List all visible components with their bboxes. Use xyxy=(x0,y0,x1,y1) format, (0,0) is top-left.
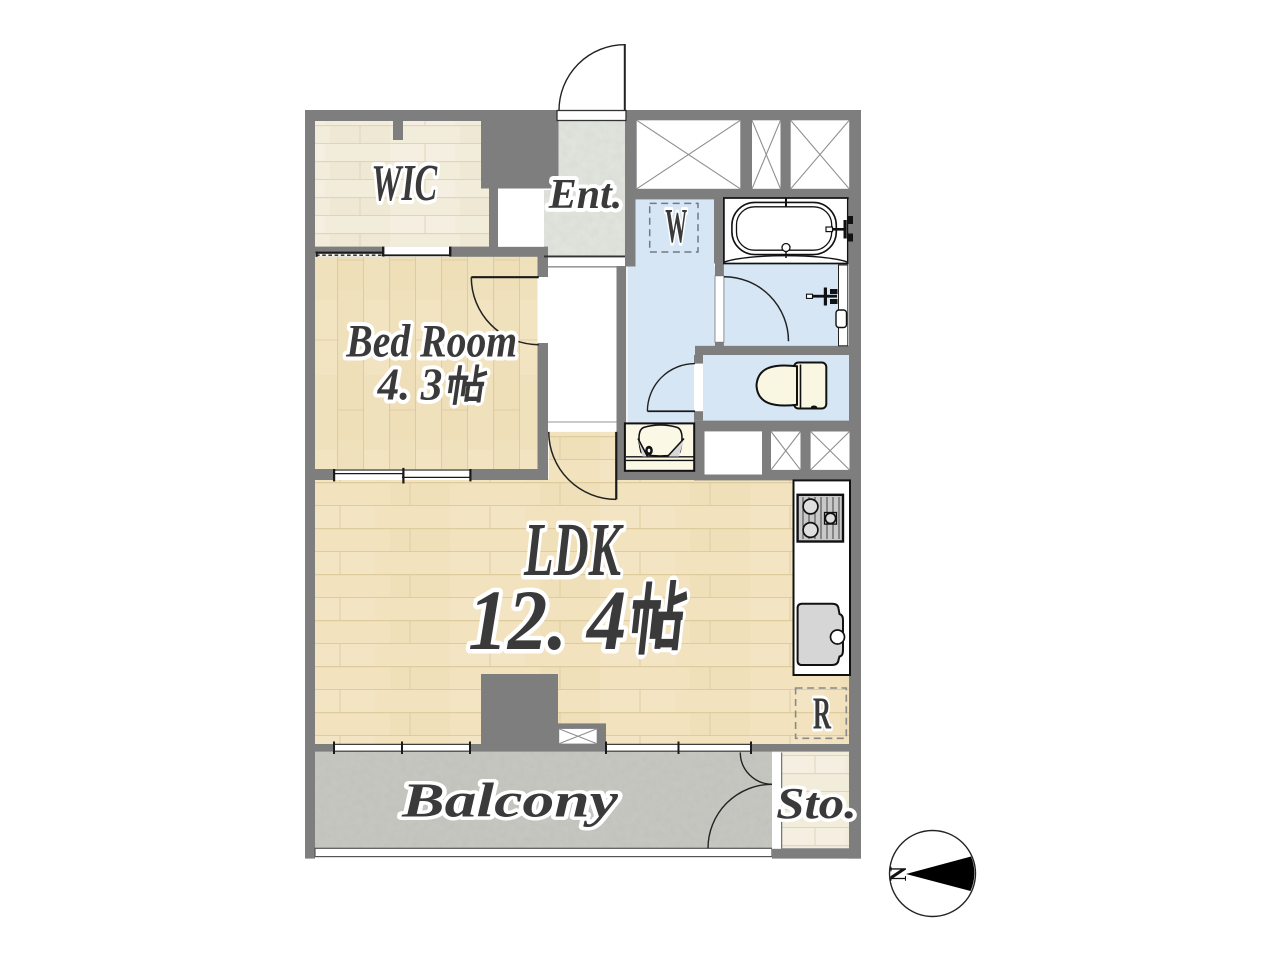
svg-text:WIC: WIC xyxy=(371,155,437,212)
svg-text:Balcony: Balcony xyxy=(401,773,619,827)
svg-text:Ent.: Ent. xyxy=(548,172,623,218)
svg-text:W: W xyxy=(665,200,687,254)
svg-text:12. 4: 12. 4 xyxy=(468,572,626,668)
svg-text:R: R xyxy=(813,689,832,740)
svg-text:N: N xyxy=(886,866,911,881)
svg-text:Sto.: Sto. xyxy=(776,780,857,828)
svg-text:4. 3: 4. 3 xyxy=(377,358,443,410)
